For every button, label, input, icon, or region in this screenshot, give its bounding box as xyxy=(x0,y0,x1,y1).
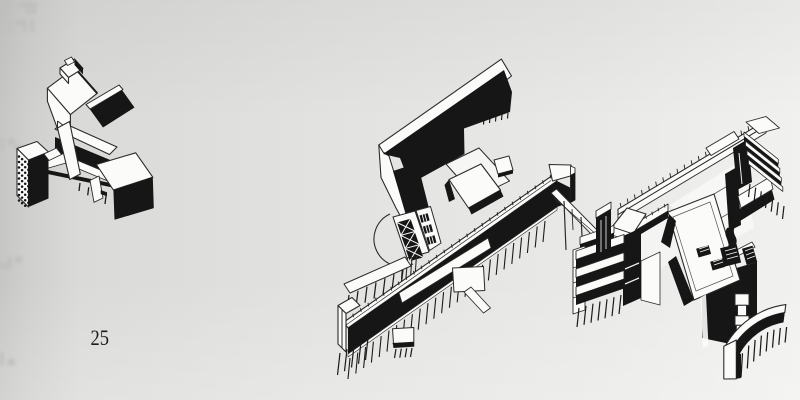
svg-text:█▌ ▀█▌: █▌ ▀█▌ xyxy=(0,1,40,15)
svg-text:▌▄: ▌▄ xyxy=(0,352,15,366)
svg-text:▄▌▀: ▄▌▀ xyxy=(0,256,23,270)
svg-text:▌▀▌▌: ▌▀▌▌ xyxy=(8,19,38,33)
svg-text:25: 25 xyxy=(91,326,109,350)
